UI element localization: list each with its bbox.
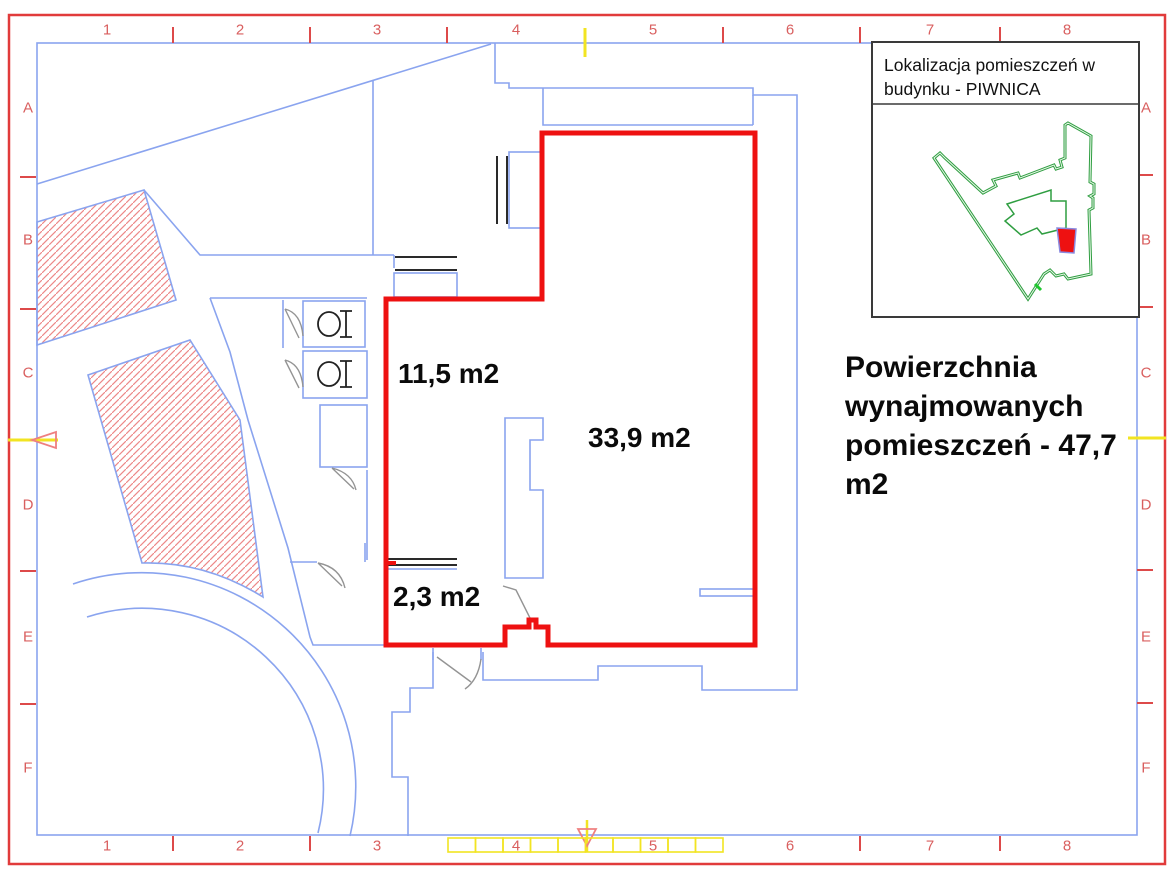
- summary-note: Powierzchnia wynajmowanych pomieszczeń -…: [845, 348, 1127, 504]
- grid-label: 2: [236, 22, 244, 39]
- grid-label: E: [23, 629, 33, 646]
- grid-label: 7: [926, 838, 934, 855]
- grid-label: F: [23, 760, 32, 777]
- scale-bar-segment: [613, 838, 641, 852]
- scale-bar-segment: [558, 838, 586, 852]
- grid-label: 4: [512, 838, 520, 855]
- toilet-icon: [318, 362, 340, 386]
- grid-label: F: [1141, 760, 1150, 777]
- grid-label: 5: [649, 838, 657, 855]
- grid-label: 6: [786, 838, 794, 855]
- leader-line: [503, 586, 531, 620]
- grid-label: D: [1141, 497, 1152, 514]
- toilet-icon: [318, 312, 340, 336]
- grid-label: 3: [373, 22, 381, 39]
- hatched-area-north: [37, 190, 176, 345]
- location-marker: [1057, 228, 1076, 253]
- toilet-fixtures: [318, 311, 352, 387]
- grid-label: 8: [1063, 838, 1071, 855]
- grid-label: 5: [649, 22, 657, 39]
- room-area-label-11-5: 11,5 m2: [398, 358, 499, 390]
- grid-label: 8: [1063, 22, 1071, 39]
- grid-label: A: [23, 100, 33, 117]
- floor-plan-page: Lokalizacja pomieszczeń w budynku - PIWN…: [0, 0, 1171, 870]
- grid-label: C: [23, 365, 34, 382]
- door-arc-icon: [285, 360, 303, 388]
- grid-label: 7: [926, 22, 934, 39]
- grid-label: A: [1141, 100, 1151, 117]
- grid-label: B: [1141, 232, 1151, 249]
- door-arc-icon: [318, 563, 345, 588]
- grid-label: E: [1141, 629, 1151, 646]
- window-icon: [497, 156, 507, 224]
- room-area-label-33-9: 33,9 m2: [588, 422, 691, 454]
- scale-bar-segment: [696, 838, 724, 852]
- scale-bar-segment: [668, 838, 696, 852]
- grid-label: 4: [512, 22, 520, 39]
- scale-bar: [448, 838, 723, 852]
- grid-label: 6: [786, 22, 794, 39]
- scale-bar-segment: [448, 838, 476, 852]
- grid-label: B: [23, 232, 33, 249]
- window-icon: [388, 559, 457, 565]
- grid-label: 1: [103, 22, 111, 39]
- window-icon: [395, 257, 457, 270]
- door-arc-icon: [285, 309, 303, 338]
- grid-label: 2: [236, 838, 244, 855]
- grid-label: 3: [373, 838, 381, 855]
- grid-label: C: [1141, 365, 1152, 382]
- scale-bar-segment: [531, 838, 559, 852]
- legend-title: Lokalizacja pomieszczeń w budynku - PIWN…: [884, 53, 1130, 101]
- door-arc-icon: [437, 657, 481, 689]
- grid-label: 1: [103, 838, 111, 855]
- door-arc-icon: [332, 468, 356, 490]
- scale-bar-segment: [476, 838, 504, 852]
- grid-label: D: [23, 497, 34, 514]
- room-area-label-2-3: 2,3 m2: [393, 581, 480, 613]
